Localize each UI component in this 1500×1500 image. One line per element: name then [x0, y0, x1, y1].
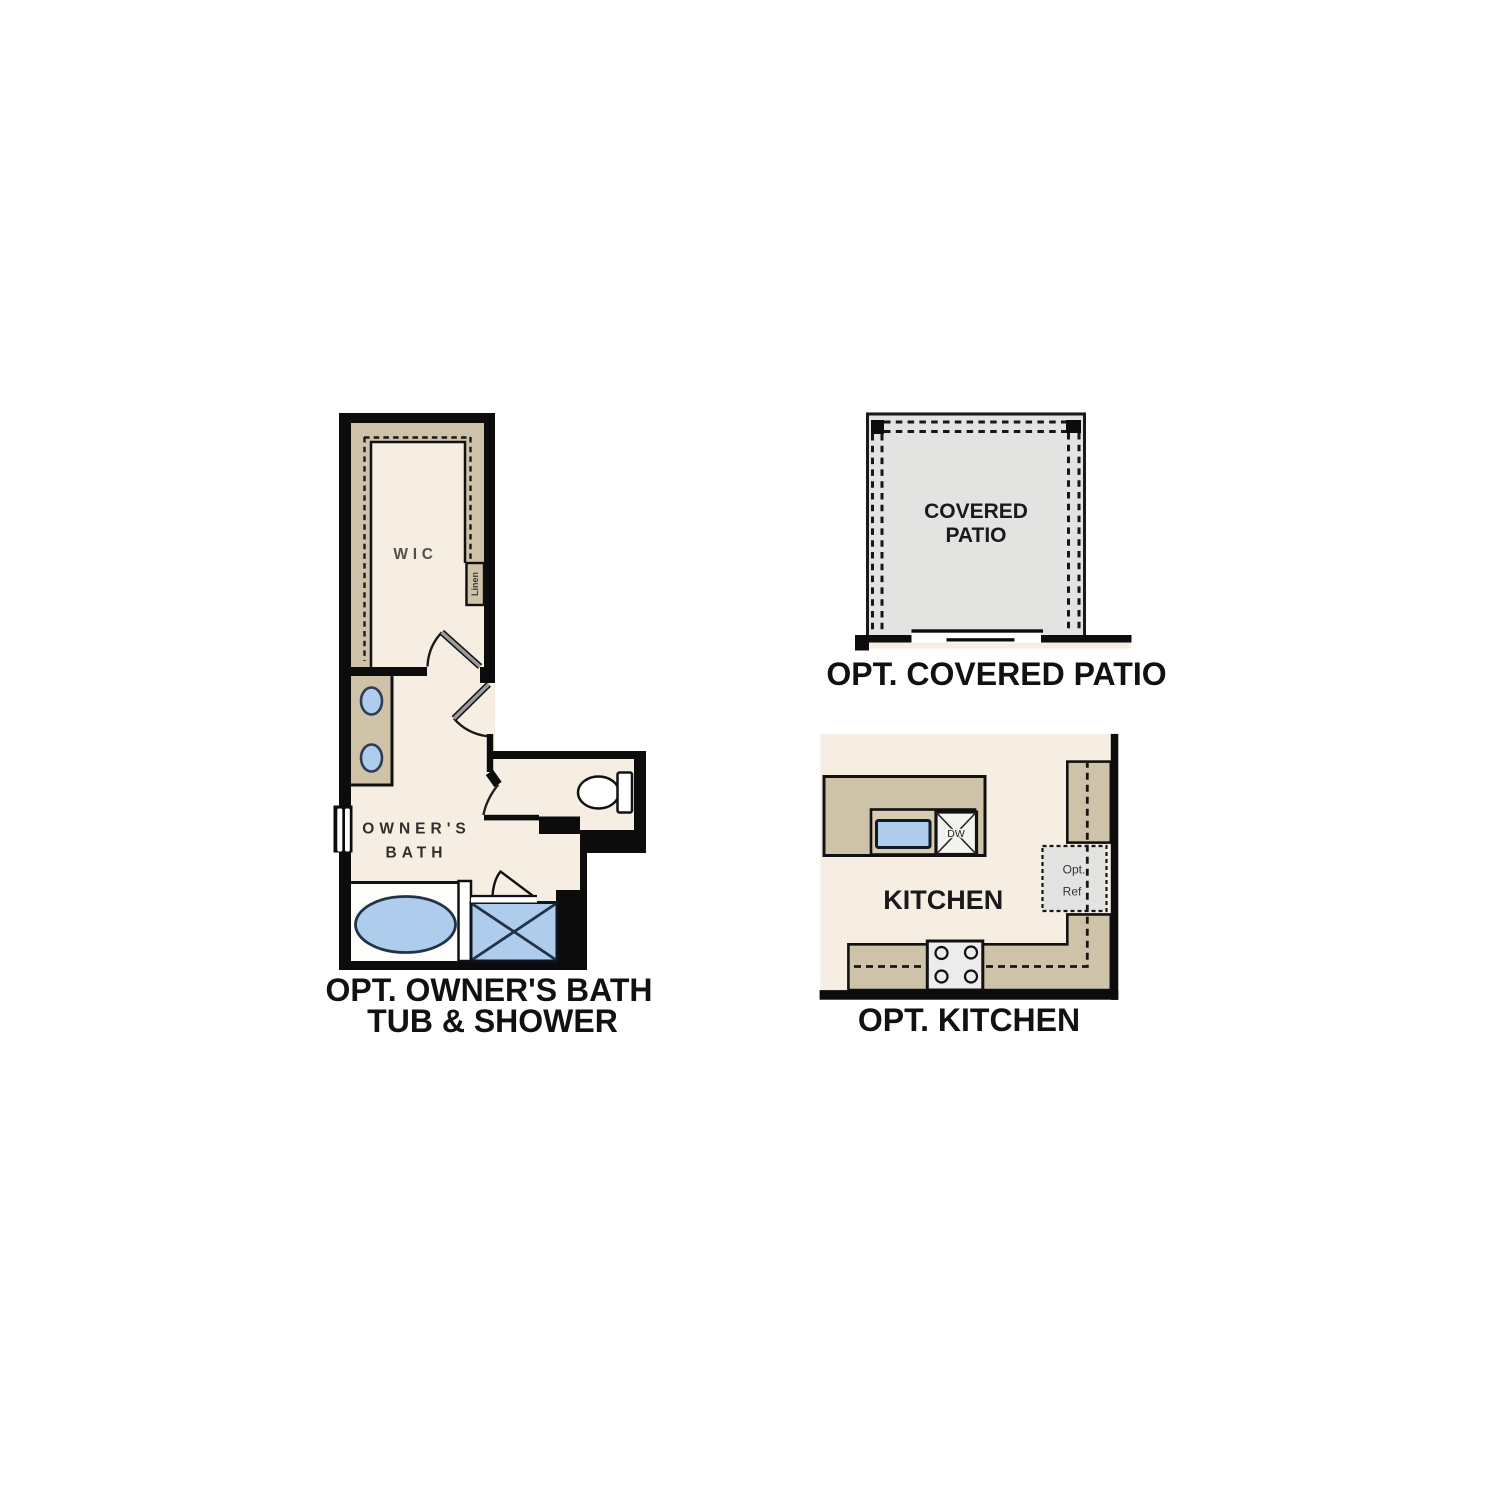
svg-text:TUB & SHOWER: TUB & SHOWER: [367, 1003, 618, 1039]
svg-text:PATIO: PATIO: [945, 524, 1006, 547]
svg-text:BATH: BATH: [386, 845, 448, 862]
svg-text:OWNER'S: OWNER'S: [362, 821, 470, 838]
svg-text:DW: DW: [947, 828, 965, 840]
svg-text:OPT. KITCHEN: OPT. KITCHEN: [858, 1002, 1080, 1038]
svg-text:OPT. COVERED PATIO: OPT. COVERED PATIO: [826, 656, 1166, 692]
svg-text:KITCHEN: KITCHEN: [883, 885, 1003, 915]
svg-text:Linen: Linen: [470, 572, 480, 596]
svg-text:Ref: Ref: [1063, 885, 1082, 899]
svg-text:Opt.: Opt.: [1063, 863, 1086, 877]
svg-text:WIC: WIC: [393, 546, 437, 563]
svg-text:COVERED: COVERED: [924, 500, 1028, 523]
